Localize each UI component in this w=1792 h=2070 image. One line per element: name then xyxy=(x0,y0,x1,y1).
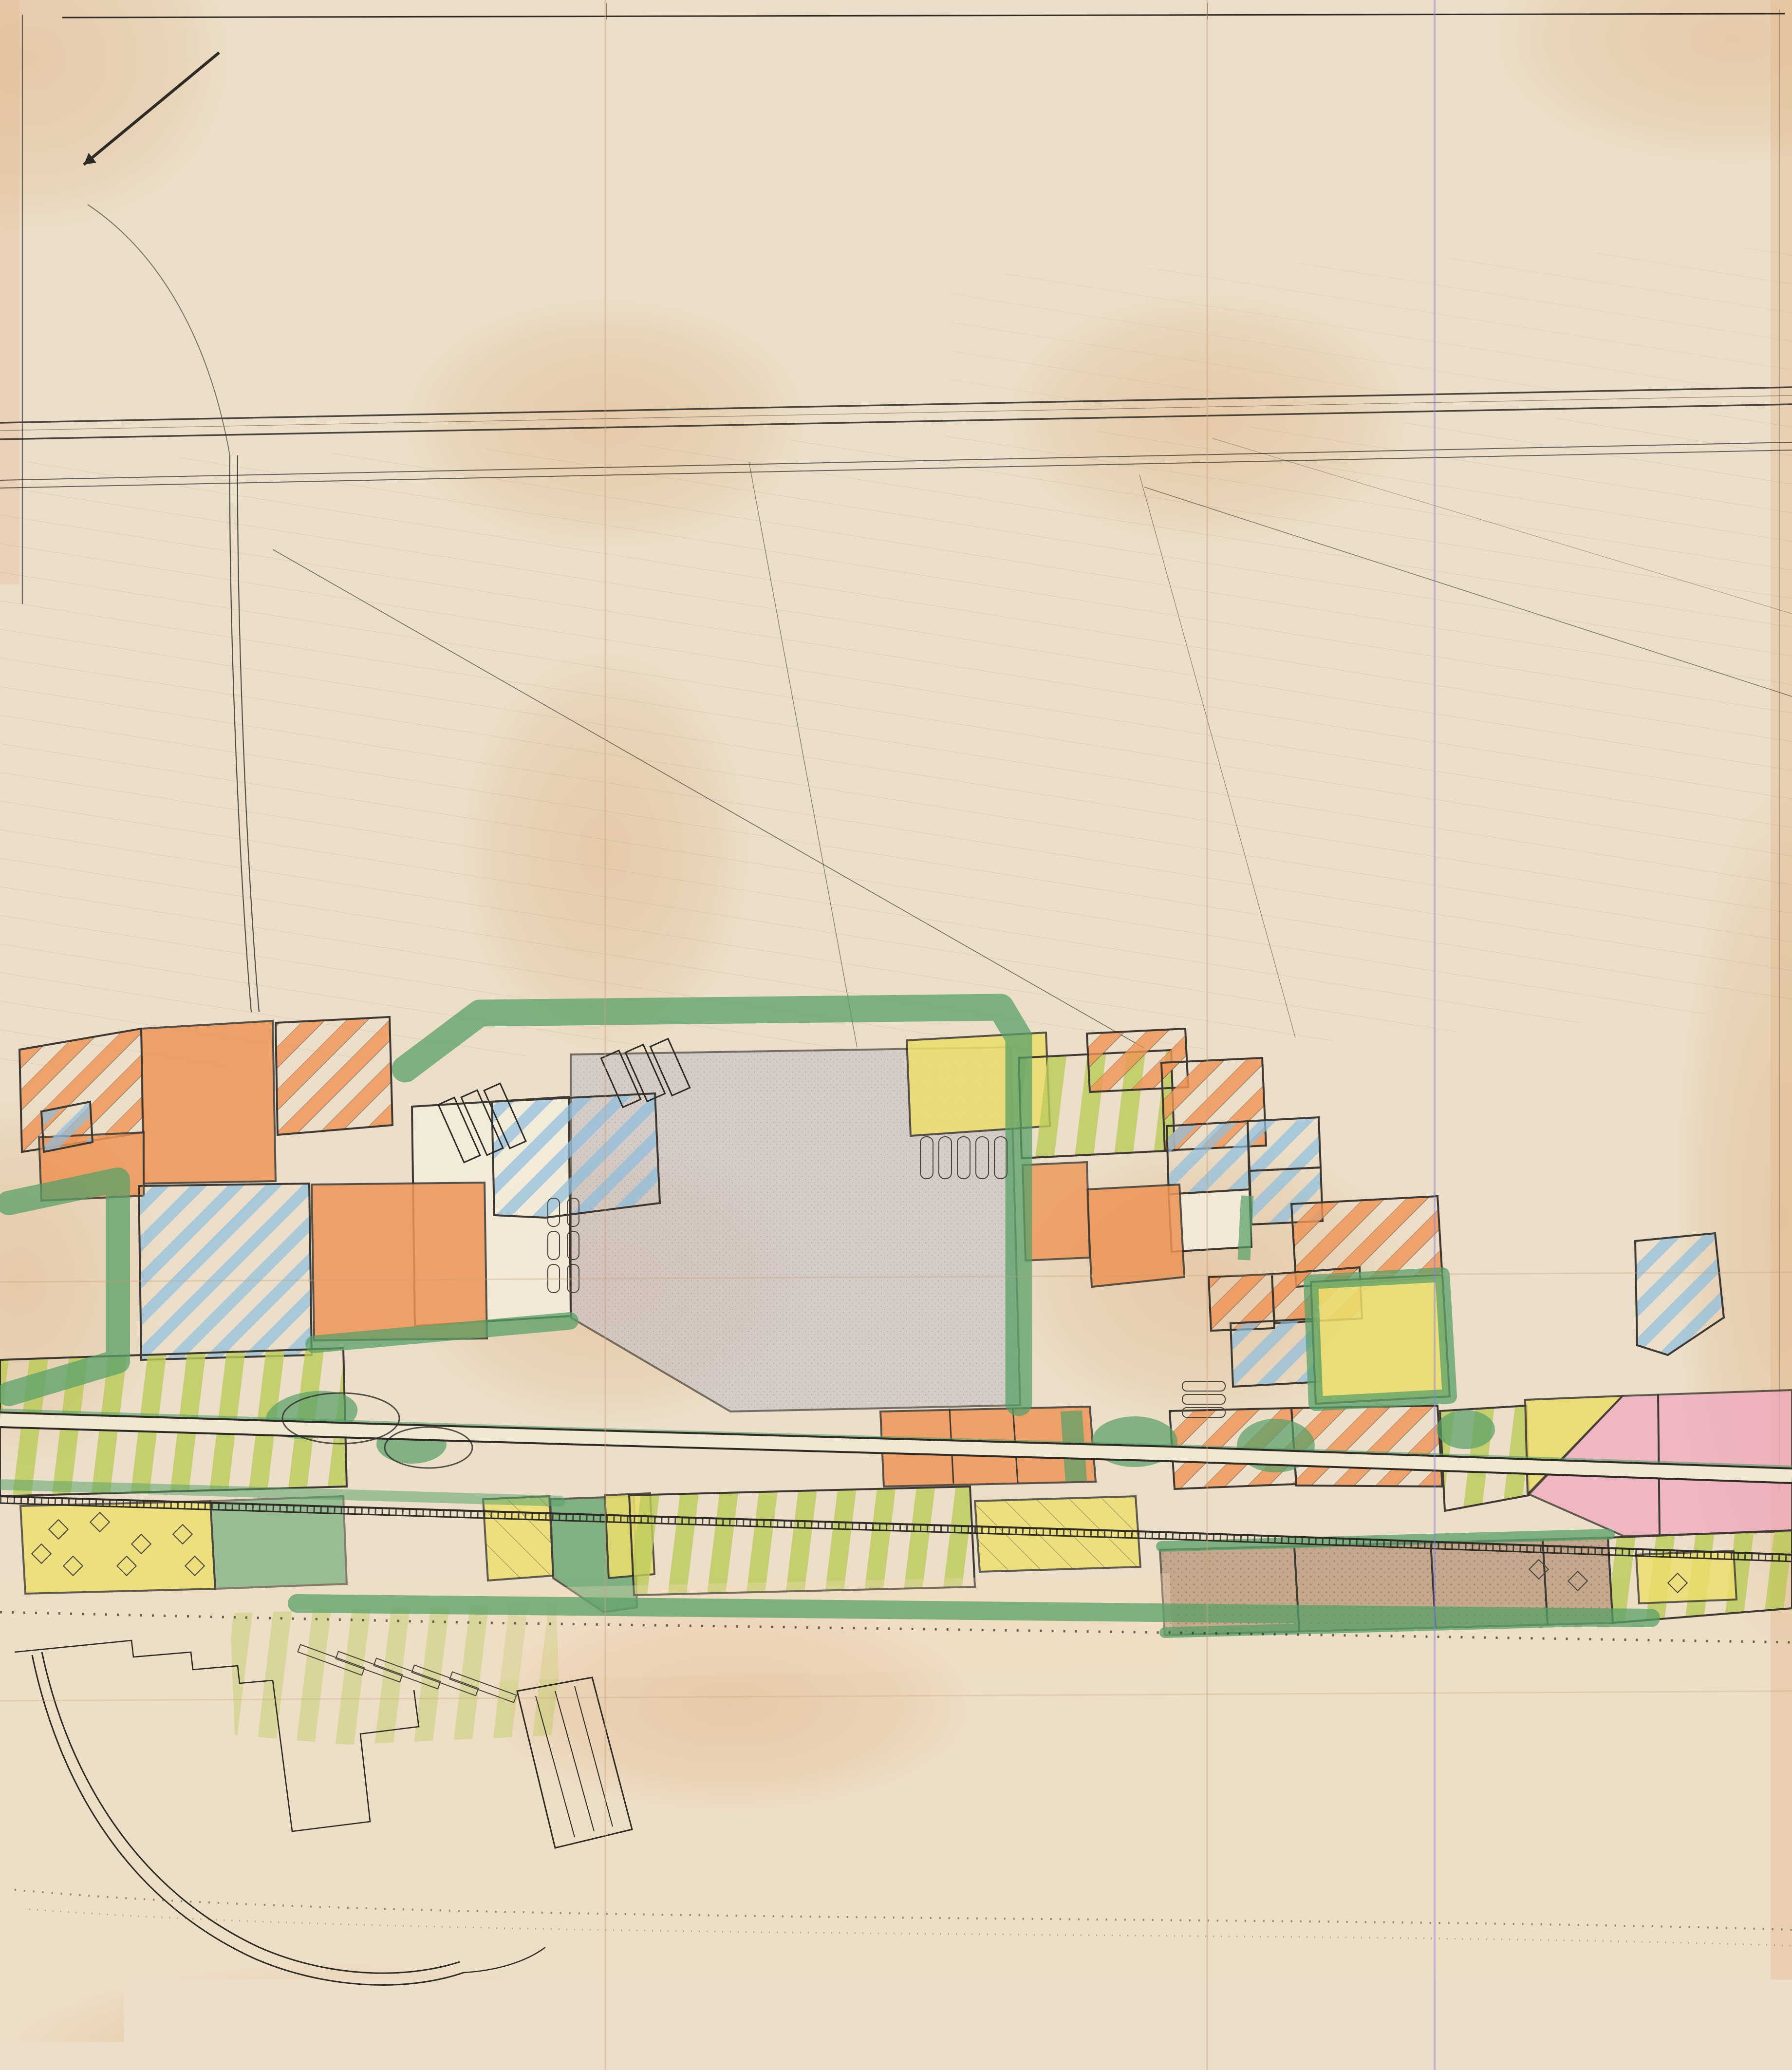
zone-yellow-diamonds-left xyxy=(20,1501,215,1594)
zone-orange-8000 xyxy=(141,1021,276,1184)
zone-blue-nbs xyxy=(139,1184,312,1360)
zone-orange-5350 xyxy=(312,1183,487,1340)
zone-orange-3100 xyxy=(1023,1162,1090,1261)
zone-orange-7150 xyxy=(1087,1185,1184,1287)
zone-blue-left-edge xyxy=(41,1102,93,1152)
zone-yellow-lots xyxy=(1311,1275,1450,1404)
zone-se xyxy=(1248,1117,1321,1171)
zone-t-striped xyxy=(629,1487,975,1595)
zone-cr xyxy=(1167,1121,1250,1194)
zoning-map xyxy=(0,0,1792,2070)
map-sheet xyxy=(0,0,1792,2070)
zone-orange-hatched-left xyxy=(276,1017,392,1135)
